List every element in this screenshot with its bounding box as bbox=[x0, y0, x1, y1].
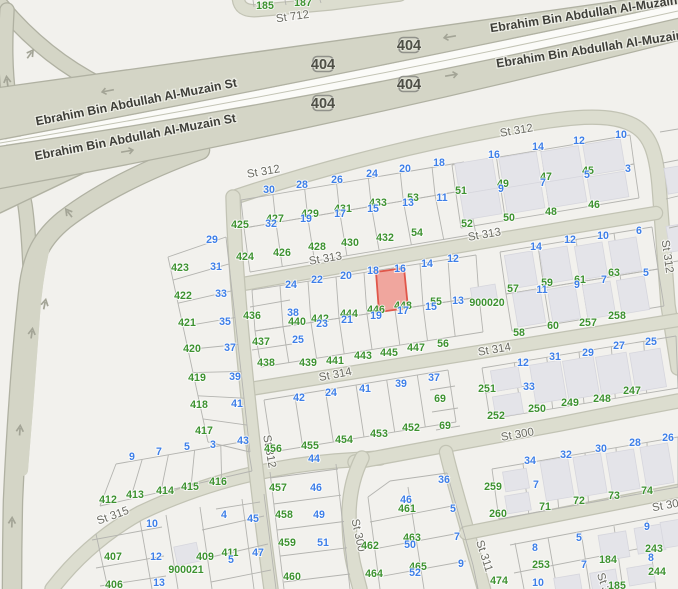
svg-text:9: 9 bbox=[498, 183, 504, 195]
svg-text:46: 46 bbox=[588, 199, 600, 211]
svg-text:252: 252 bbox=[487, 410, 505, 422]
svg-text:428: 428 bbox=[308, 241, 326, 253]
svg-text:19: 19 bbox=[370, 310, 382, 322]
svg-text:447: 447 bbox=[407, 342, 425, 354]
svg-text:253: 253 bbox=[532, 559, 550, 571]
svg-text:48: 48 bbox=[545, 206, 557, 218]
svg-text:418: 418 bbox=[190, 399, 208, 411]
svg-text:900021: 900021 bbox=[168, 564, 203, 576]
svg-text:19: 19 bbox=[300, 213, 312, 225]
svg-text:432: 432 bbox=[376, 232, 394, 244]
svg-text:30: 30 bbox=[595, 443, 607, 455]
svg-text:452: 452 bbox=[402, 422, 420, 434]
svg-text:74: 74 bbox=[641, 485, 653, 497]
svg-text:430: 430 bbox=[341, 237, 359, 249]
svg-text:17: 17 bbox=[397, 305, 409, 317]
svg-text:24: 24 bbox=[366, 168, 378, 180]
svg-text:414: 414 bbox=[156, 485, 174, 497]
svg-text:10: 10 bbox=[597, 230, 609, 242]
svg-text:9: 9 bbox=[644, 521, 650, 533]
svg-text:10: 10 bbox=[146, 518, 158, 530]
svg-text:11: 11 bbox=[436, 192, 447, 204]
svg-text:30: 30 bbox=[263, 184, 275, 196]
svg-text:13: 13 bbox=[153, 577, 165, 589]
svg-text:38: 38 bbox=[287, 307, 299, 319]
svg-text:63: 63 bbox=[608, 267, 620, 279]
svg-text:12: 12 bbox=[573, 135, 585, 147]
svg-text:20: 20 bbox=[399, 163, 411, 175]
svg-text:462: 462 bbox=[361, 540, 379, 552]
svg-text:52: 52 bbox=[409, 567, 421, 579]
svg-text:39: 39 bbox=[229, 371, 241, 383]
svg-text:9: 9 bbox=[129, 451, 135, 463]
svg-text:28: 28 bbox=[629, 437, 641, 449]
svg-text:12: 12 bbox=[447, 253, 459, 265]
svg-text:18: 18 bbox=[433, 157, 445, 169]
svg-text:425: 425 bbox=[231, 219, 249, 231]
svg-text:439: 439 bbox=[299, 357, 317, 369]
svg-text:73: 73 bbox=[608, 490, 620, 502]
svg-text:36: 36 bbox=[438, 474, 450, 486]
svg-text:14: 14 bbox=[532, 141, 544, 153]
svg-text:412: 412 bbox=[99, 494, 117, 506]
svg-text:7: 7 bbox=[540, 177, 546, 189]
svg-text:25: 25 bbox=[292, 334, 304, 346]
svg-text:16: 16 bbox=[394, 263, 406, 275]
svg-text:17: 17 bbox=[334, 208, 346, 220]
svg-text:29: 29 bbox=[582, 347, 594, 359]
svg-text:436: 436 bbox=[243, 310, 261, 322]
svg-text:426: 426 bbox=[273, 247, 291, 259]
svg-text:5: 5 bbox=[450, 503, 456, 515]
svg-text:71: 71 bbox=[539, 501, 551, 513]
svg-text:249: 249 bbox=[561, 397, 579, 409]
svg-text:37: 37 bbox=[224, 342, 236, 354]
svg-text:33: 33 bbox=[523, 381, 535, 393]
svg-text:24: 24 bbox=[325, 387, 337, 399]
svg-text:185: 185 bbox=[608, 580, 626, 589]
svg-text:12: 12 bbox=[517, 357, 529, 369]
svg-text:407: 407 bbox=[104, 551, 122, 563]
svg-text:5: 5 bbox=[184, 441, 190, 453]
svg-text:46: 46 bbox=[400, 494, 412, 506]
svg-text:22: 22 bbox=[311, 274, 323, 286]
svg-text:7: 7 bbox=[601, 274, 607, 286]
svg-text:185: 185 bbox=[256, 0, 274, 12]
svg-text:464: 464 bbox=[365, 568, 383, 580]
svg-text:35: 35 bbox=[219, 316, 231, 328]
svg-text:437: 437 bbox=[252, 336, 270, 348]
svg-text:417: 417 bbox=[195, 425, 213, 437]
svg-text:187: 187 bbox=[294, 0, 312, 9]
svg-text:247: 247 bbox=[623, 385, 641, 397]
svg-text:32: 32 bbox=[560, 449, 572, 461]
svg-text:458: 458 bbox=[275, 509, 293, 521]
svg-text:54: 54 bbox=[411, 227, 423, 239]
svg-text:419: 419 bbox=[188, 372, 206, 384]
svg-text:21: 21 bbox=[341, 314, 353, 326]
svg-text:184: 184 bbox=[599, 554, 617, 566]
svg-text:424: 424 bbox=[236, 251, 254, 263]
svg-text:8: 8 bbox=[648, 552, 654, 564]
svg-text:460: 460 bbox=[283, 571, 301, 583]
svg-text:20: 20 bbox=[340, 270, 352, 282]
svg-text:457: 457 bbox=[269, 482, 287, 494]
svg-text:37: 37 bbox=[428, 372, 440, 384]
svg-text:406: 406 bbox=[105, 579, 123, 589]
svg-text:28: 28 bbox=[296, 179, 308, 191]
svg-text:404: 404 bbox=[311, 96, 335, 112]
svg-text:43: 43 bbox=[237, 435, 249, 447]
svg-text:6: 6 bbox=[636, 225, 642, 237]
svg-text:257: 257 bbox=[579, 317, 597, 329]
svg-text:46: 46 bbox=[310, 482, 322, 494]
svg-text:49: 49 bbox=[313, 509, 325, 521]
svg-text:44: 44 bbox=[308, 453, 320, 465]
svg-text:57: 57 bbox=[507, 283, 519, 295]
svg-text:404: 404 bbox=[311, 57, 335, 73]
svg-text:13: 13 bbox=[402, 197, 414, 209]
svg-text:41: 41 bbox=[231, 398, 243, 410]
svg-text:453: 453 bbox=[370, 428, 388, 440]
svg-text:29: 29 bbox=[206, 234, 218, 246]
svg-text:7: 7 bbox=[533, 479, 539, 491]
svg-text:259: 259 bbox=[484, 481, 502, 493]
svg-text:445: 445 bbox=[380, 347, 398, 359]
svg-text:438: 438 bbox=[257, 357, 275, 369]
svg-text:5: 5 bbox=[584, 169, 590, 181]
svg-text:72: 72 bbox=[573, 495, 585, 507]
svg-text:404: 404 bbox=[397, 77, 421, 93]
svg-text:3: 3 bbox=[210, 439, 216, 451]
svg-text:404: 404 bbox=[397, 38, 421, 54]
svg-text:5: 5 bbox=[643, 267, 649, 279]
svg-text:33: 33 bbox=[215, 288, 227, 300]
svg-text:248: 248 bbox=[593, 393, 611, 405]
svg-text:42: 42 bbox=[293, 392, 305, 404]
svg-text:441: 441 bbox=[326, 355, 344, 367]
svg-text:26: 26 bbox=[662, 432, 674, 444]
svg-text:9: 9 bbox=[458, 558, 464, 570]
svg-text:31: 31 bbox=[549, 351, 561, 363]
svg-text:16: 16 bbox=[488, 149, 500, 161]
svg-text:12: 12 bbox=[150, 551, 162, 563]
svg-text:25: 25 bbox=[645, 336, 657, 348]
svg-text:409: 409 bbox=[196, 551, 214, 563]
svg-text:58: 58 bbox=[513, 327, 525, 339]
svg-text:251: 251 bbox=[478, 383, 496, 395]
svg-text:56: 56 bbox=[437, 338, 449, 350]
svg-text:7: 7 bbox=[156, 446, 162, 458]
svg-text:4: 4 bbox=[221, 509, 227, 521]
svg-text:420: 420 bbox=[183, 343, 201, 355]
svg-text:455: 455 bbox=[301, 440, 319, 452]
svg-text:24: 24 bbox=[285, 279, 297, 291]
svg-text:3: 3 bbox=[625, 163, 631, 175]
svg-text:7: 7 bbox=[581, 559, 587, 571]
svg-text:423: 423 bbox=[171, 262, 189, 274]
svg-text:60: 60 bbox=[547, 320, 559, 332]
svg-text:443: 443 bbox=[354, 350, 372, 362]
svg-text:50: 50 bbox=[503, 212, 515, 224]
svg-text:8: 8 bbox=[532, 542, 538, 554]
svg-text:421: 421 bbox=[178, 317, 196, 329]
svg-text:260: 260 bbox=[489, 508, 507, 520]
svg-text:31: 31 bbox=[210, 261, 222, 273]
svg-text:34: 34 bbox=[524, 455, 536, 467]
svg-text:456: 456 bbox=[264, 443, 282, 455]
svg-text:900020: 900020 bbox=[469, 297, 504, 309]
svg-text:69: 69 bbox=[434, 393, 446, 405]
svg-text:15: 15 bbox=[367, 203, 379, 215]
svg-text:12: 12 bbox=[564, 234, 576, 246]
svg-text:474: 474 bbox=[490, 575, 508, 587]
svg-text:250: 250 bbox=[528, 403, 546, 415]
svg-text:26: 26 bbox=[331, 174, 343, 186]
svg-text:18: 18 bbox=[367, 265, 379, 277]
svg-text:32: 32 bbox=[265, 218, 277, 230]
svg-text:23: 23 bbox=[316, 318, 328, 330]
svg-text:13: 13 bbox=[452, 295, 464, 307]
svg-text:9: 9 bbox=[574, 279, 580, 291]
svg-text:459: 459 bbox=[278, 537, 296, 549]
svg-text:14: 14 bbox=[530, 241, 542, 253]
svg-text:454: 454 bbox=[335, 434, 353, 446]
svg-text:244: 244 bbox=[648, 566, 666, 578]
svg-text:10: 10 bbox=[615, 129, 627, 141]
svg-text:45: 45 bbox=[247, 513, 259, 525]
svg-text:415: 415 bbox=[181, 481, 199, 493]
svg-text:416: 416 bbox=[209, 476, 227, 488]
svg-text:52: 52 bbox=[461, 218, 473, 230]
svg-text:14: 14 bbox=[421, 258, 433, 270]
svg-text:51: 51 bbox=[455, 185, 467, 197]
svg-text:39: 39 bbox=[395, 378, 407, 390]
svg-text:10: 10 bbox=[532, 577, 544, 589]
svg-text:258: 258 bbox=[608, 310, 626, 322]
svg-text:47: 47 bbox=[252, 547, 264, 559]
svg-text:41: 41 bbox=[359, 383, 371, 395]
svg-text:27: 27 bbox=[613, 340, 625, 352]
svg-text:7: 7 bbox=[454, 531, 460, 543]
svg-text:69: 69 bbox=[439, 420, 451, 432]
svg-text:50: 50 bbox=[404, 539, 416, 551]
svg-text:15: 15 bbox=[425, 301, 437, 313]
svg-text:413: 413 bbox=[126, 489, 144, 501]
svg-text:51: 51 bbox=[317, 537, 329, 549]
svg-text:422: 422 bbox=[174, 290, 192, 302]
svg-text:5: 5 bbox=[228, 554, 234, 566]
svg-text:5: 5 bbox=[576, 532, 582, 544]
svg-text:11: 11 bbox=[536, 284, 547, 296]
